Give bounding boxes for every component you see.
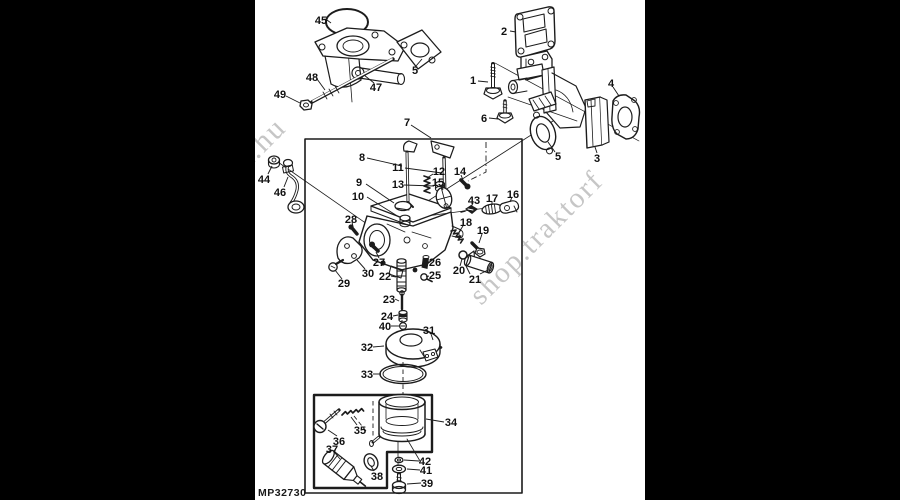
part-34-float-bowl (370, 395, 426, 447)
callout-33: 33 (361, 369, 373, 381)
leader-49 (286, 96, 300, 103)
part-42-oring (395, 457, 403, 462)
callout-25: 25 (429, 270, 441, 282)
callout-9: 9 (356, 177, 362, 189)
part-44-nut (269, 156, 280, 168)
leader-23 (395, 299, 399, 301)
callout-7: 7 (404, 117, 410, 129)
callout-41: 41 (420, 465, 432, 477)
leader-7 (411, 125, 431, 138)
part-39-bowl-bolt (393, 474, 406, 494)
callout-30: 30 (362, 268, 374, 280)
part-29-screw (329, 260, 343, 271)
callout-6: 6 (481, 113, 487, 125)
callout-49: 49 (274, 89, 286, 101)
part-14-screw (461, 180, 471, 190)
watermark-text-1: shop.traktorf (463, 165, 609, 311)
callout-22: 22 (379, 271, 391, 283)
leader-1 (478, 81, 488, 82)
leader-48 (317, 79, 325, 90)
callout-46: 46 (274, 187, 286, 199)
callout-1: 1 (470, 75, 476, 87)
callout-16: 16 (507, 189, 519, 201)
callout-20: 20 (453, 265, 465, 277)
part-41-washer (393, 465, 406, 473)
part-24-jet (399, 311, 407, 323)
callout-5a: 5 (412, 65, 418, 77)
leader-24 (393, 315, 398, 316)
part-35-spring (342, 409, 364, 415)
part-6-bolt (497, 101, 513, 123)
leader-46 (284, 177, 288, 187)
scanned-page: k.hushop.traktorf (255, 0, 645, 500)
part-9-seal (395, 202, 411, 211)
leader-39 (407, 483, 421, 484)
callout-4: 4 (608, 78, 615, 90)
part-23-needle (400, 291, 404, 313)
part-30-cam-plate (337, 237, 362, 264)
leader-42 (404, 460, 419, 461)
callout-44: 44 (258, 174, 271, 186)
callout-48: 48 (306, 72, 318, 84)
callout-2: 2 (501, 26, 507, 38)
callout-18: 18 (460, 217, 472, 229)
callout-26: 26 (429, 257, 441, 269)
callout-39: 39 (421, 478, 433, 490)
part-12-spring (424, 176, 430, 193)
callout-13: 13 (392, 179, 404, 191)
callout-34: 34 (445, 417, 458, 429)
callout-31: 31 (423, 325, 435, 337)
callout-11: 11 (392, 162, 404, 174)
part-16-elbow-fitting (500, 201, 519, 213)
part-38-washer (362, 452, 381, 473)
callout-27: 27 (373, 257, 385, 269)
part-49-nut (300, 100, 312, 110)
leader-9 (366, 184, 394, 203)
part-4-gasket (612, 95, 640, 139)
callout-45: 45 (315, 15, 327, 27)
leader-41 (407, 469, 420, 470)
callout-15: 15 (432, 177, 444, 189)
callout-32: 32 (361, 342, 373, 354)
callout-35: 35 (354, 425, 366, 437)
callout-40: 40 (379, 321, 391, 333)
letterbox-right (645, 0, 900, 500)
callout-21: 21 (469, 274, 481, 286)
callout-10: 10 (352, 191, 364, 203)
callout-38: 38 (371, 471, 383, 483)
callout-37: 37 (326, 444, 338, 456)
parts-diagram: k.hushop.traktorf (255, 0, 645, 500)
callout-8: 8 (359, 152, 365, 164)
part-2-gasket (515, 7, 555, 57)
leader-34 (426, 419, 444, 422)
part-3-spacer (585, 97, 609, 148)
letterbox-left (0, 0, 255, 500)
callout-19: 19 (477, 225, 489, 237)
callout-47: 47 (370, 82, 382, 94)
callout-28: 28 (345, 214, 357, 226)
part-manifold-body (509, 51, 587, 128)
leader-45 (327, 20, 331, 23)
callout-43: 43 (468, 195, 480, 207)
callout-3: 3 (594, 153, 600, 165)
callout-29: 29 (338, 278, 350, 290)
callout-5b: 5 (555, 151, 561, 163)
callout-17: 17 (486, 193, 498, 205)
leader-32 (373, 346, 384, 347)
screenshot-root: { "colors": { "letterbox": "#000000", "p… (0, 0, 900, 500)
figure-code: MP32730 (258, 487, 306, 499)
part-36-screw (314, 410, 339, 433)
part-48-rod (312, 59, 393, 102)
callout-23: 23 (383, 294, 395, 306)
callout-14: 14 (454, 166, 467, 178)
